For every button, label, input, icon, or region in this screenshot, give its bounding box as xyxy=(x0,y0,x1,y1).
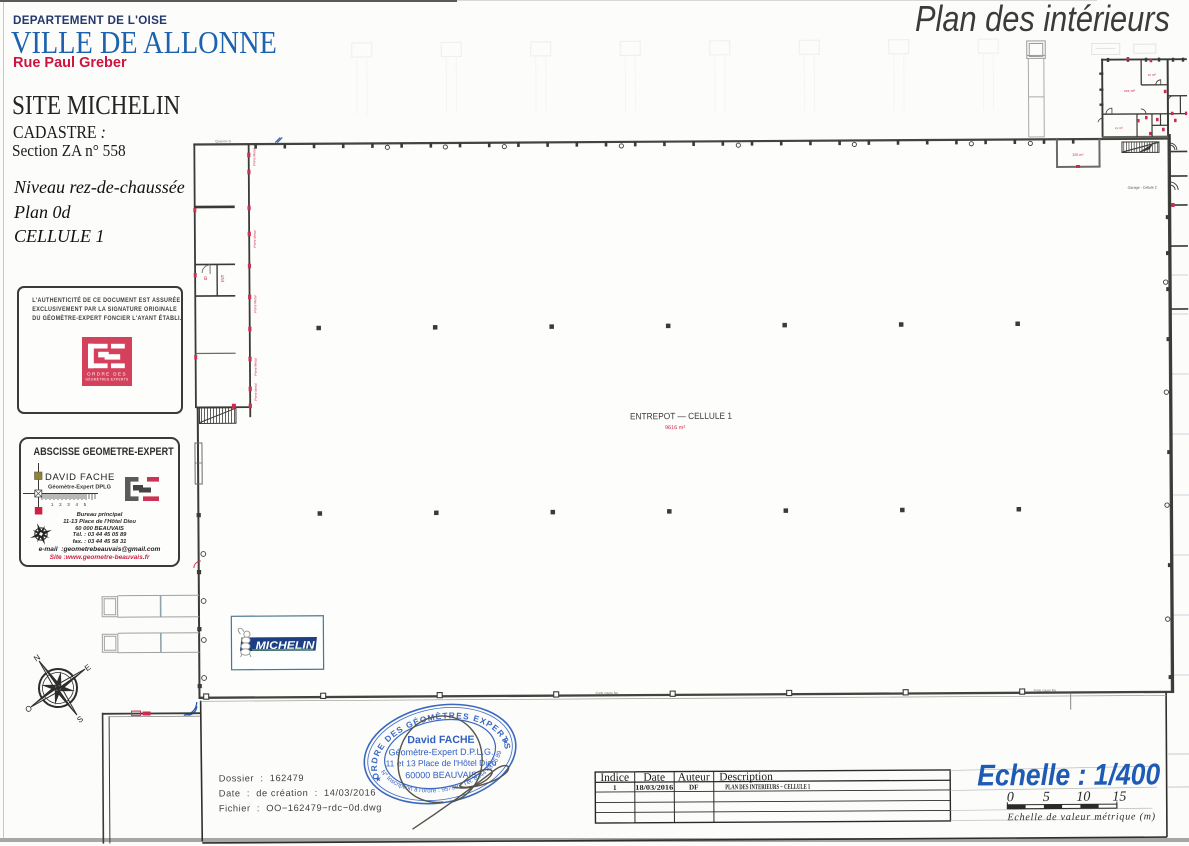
svg-text:Echelle de valeur métrique: Echelle de valeur métrique (m) xyxy=(1006,811,1155,823)
svg-text:Date: Date xyxy=(643,772,665,784)
svg-text:Porte coupe feu: Porte coupe feu xyxy=(1034,688,1057,692)
svg-text:Date : de création : 14/03: Date : de création : 14/03/2016 xyxy=(219,788,376,799)
svg-text:9616 m²: 9616 m² xyxy=(665,425,685,431)
svg-text:David FACHE: David FACHE xyxy=(407,734,474,746)
svg-text:Dossier : 162479: Dossier : 162479 xyxy=(219,773,304,784)
svg-text:11 et 13 Place de l'Hôtel Dieu: 11 et 13 Place de l'Hôtel Dieu xyxy=(386,758,497,769)
svg-text:325 m²: 325 m² xyxy=(1072,153,1084,157)
svg-text:DF: DF xyxy=(689,783,699,791)
svg-text:Porte Metal: Porte Metal xyxy=(254,358,258,376)
svg-text:1: 1 xyxy=(613,784,617,792)
svg-text:ENTREPOT — CELLULE 1: ENTREPOT — CELLULE 1 xyxy=(630,411,732,422)
svg-text:INT: INT xyxy=(220,274,225,282)
svg-text:Porte coupe feu: Porte coupe feu xyxy=(596,691,619,695)
svg-text:Echelle : 1/400: Echelle : 1/400 xyxy=(977,758,1160,792)
svg-text:Porte Metal: Porte Metal xyxy=(254,383,258,401)
svg-text:Quai niv 0: Quai niv 0 xyxy=(215,139,230,143)
svg-text:Porte Metal: Porte Metal xyxy=(253,295,257,313)
svg-text:Géomètre-Expert D.P.L.G.: Géomètre-Expert D.P.L.G. xyxy=(389,747,494,758)
svg-text:18/03/2016: 18/03/2016 xyxy=(635,784,674,792)
svg-text:Fichier : OO−162479−rdc−0d.d: Fichier : OO−162479−rdc−0d.dwg xyxy=(219,802,382,813)
svg-text:Porte Metal: Porte Metal xyxy=(252,148,256,166)
svg-text:10: 10 xyxy=(1076,790,1090,805)
svg-text:PLAN DES INTERIEURS − CELLULE: PLAN DES INTERIEURS − CELLULE 1 xyxy=(725,783,810,792)
svg-text:5: 5 xyxy=(1043,790,1050,805)
svg-text:Garage - Cellule 2: Garage - Cellule 2 xyxy=(1128,186,1157,190)
svg-text:xx m²: xx m² xyxy=(1148,73,1157,77)
svg-text:xxx m²: xxx m² xyxy=(1124,89,1136,93)
svg-text:Porte Metal: Porte Metal xyxy=(253,230,257,248)
svg-text:Indice: Indice xyxy=(600,772,629,784)
svg-text:xx m²: xx m² xyxy=(1115,126,1123,130)
svg-text:Description: Description xyxy=(719,771,773,783)
svg-text:Auteur: Auteur xyxy=(678,771,710,783)
svg-text:15: 15 xyxy=(1112,790,1126,805)
